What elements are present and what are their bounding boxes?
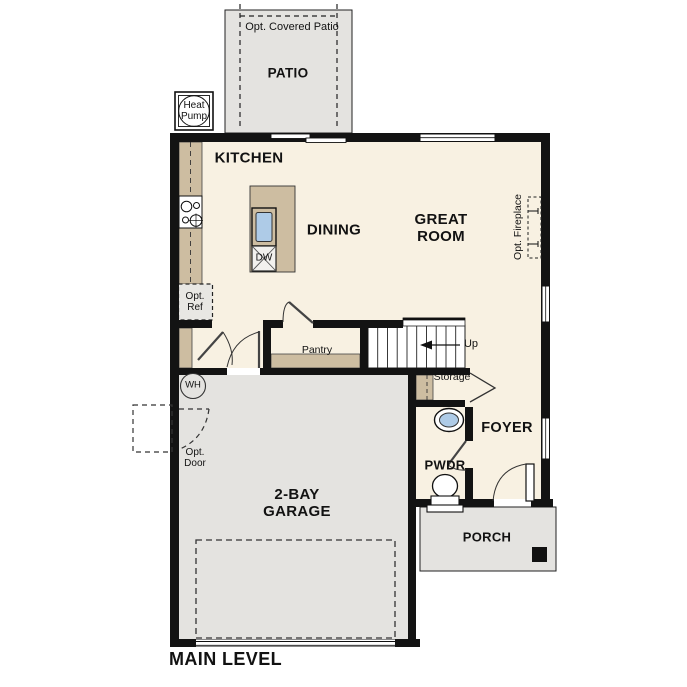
porch-post (532, 547, 547, 562)
kitchen-label: KITCHEN (215, 151, 284, 168)
opt-door-label: Opt. Door (177, 447, 213, 469)
up-label: Up (464, 338, 478, 350)
opt-ref-label: Opt. Ref (179, 291, 211, 313)
opt-covered-patio-label: Opt. Covered Patio (245, 21, 339, 33)
porch-label: PORCH (463, 531, 511, 546)
water-heater-label: WH (185, 381, 201, 392)
heat-pump-label: Heat Pump (174, 100, 214, 122)
garage-label: 2-BAY GARAGE (242, 487, 352, 521)
pwdr-sink-icon (435, 409, 464, 432)
pwdr-label: PWDR (425, 459, 466, 474)
opt-fireplace-label: Opt. Fireplace (513, 194, 525, 260)
foyer-window (542, 418, 550, 459)
floor-plan: Opt. Covered Patio PATIO Heat Pump KITCH… (0, 0, 687, 687)
pantry-label: Pantry (302, 345, 332, 357)
range-icon (179, 196, 203, 228)
foyer-label: FOYER (481, 420, 532, 436)
plan-title: MAIN LEVEL (169, 649, 282, 670)
patio-label: PATIO (268, 65, 309, 80)
dining-label: DINING (307, 223, 361, 240)
kitchen-sink-icon (256, 213, 272, 242)
storage-label: Storage (434, 372, 471, 384)
great-room-window (420, 134, 495, 142)
stair-railing (403, 318, 465, 326)
dishwasher-label: DW (256, 252, 273, 263)
right-wall-window-upper (542, 286, 550, 322)
floor-plan-drawing (0, 0, 687, 687)
storage-shelf (416, 375, 433, 400)
hall-counter (179, 328, 192, 368)
great-room-label: GREAT ROOM (395, 212, 487, 246)
